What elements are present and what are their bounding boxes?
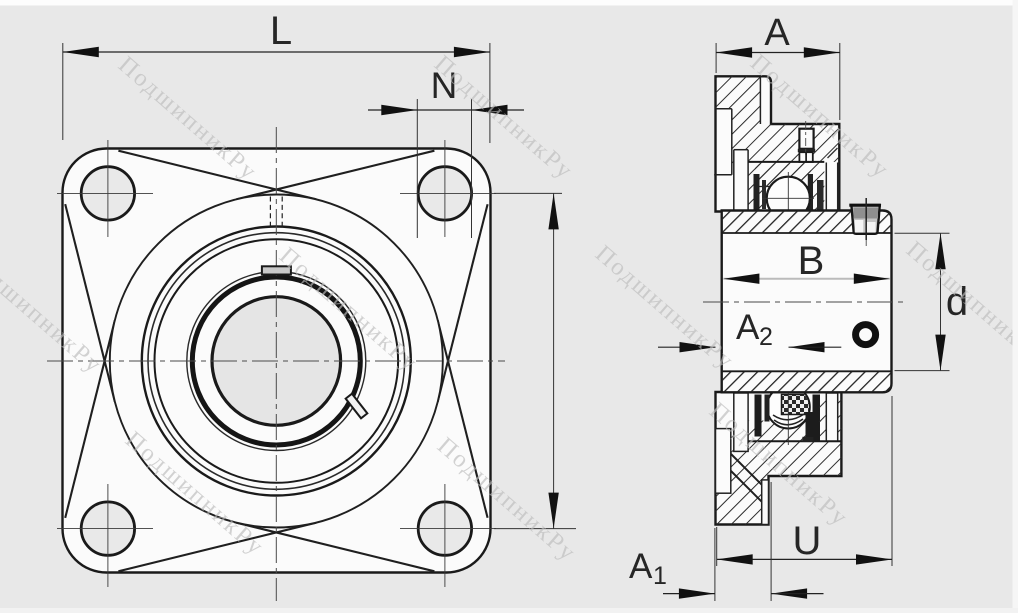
svg-text:L: L	[270, 9, 292, 53]
svg-text:A: A	[629, 547, 653, 586]
svg-text:A: A	[736, 308, 760, 347]
svg-text:1: 1	[653, 562, 667, 590]
svg-text:2: 2	[759, 323, 773, 351]
svg-text:B: B	[798, 239, 825, 283]
svg-text:A: A	[764, 12, 790, 54]
svg-text:U: U	[793, 519, 822, 563]
